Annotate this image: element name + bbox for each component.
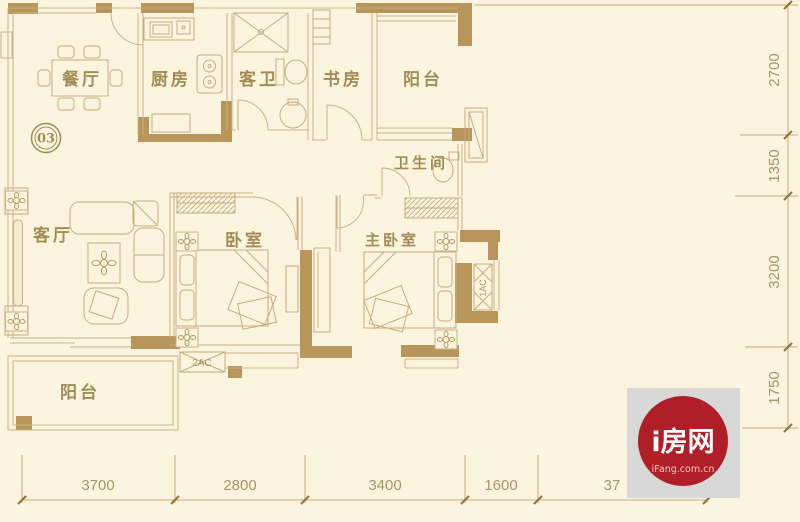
unit-number: 03 bbox=[37, 132, 55, 147]
ifang-logo[interactable]: i房网 iFang.com.cn bbox=[627, 388, 740, 498]
dim-right-1750: 1750 bbox=[766, 371, 783, 404]
furniture bbox=[5, 10, 487, 335]
ac-unit-1-label: 1AC bbox=[478, 279, 488, 297]
dim-right-2700: 2700 bbox=[766, 53, 783, 86]
floor-plan-page: 2AC 1AC 餐厅 厨房 客卫 书房 阳台 卫生间 客厅 卧室 主卧室 阳台 … bbox=[0, 0, 800, 522]
floor-plan-canvas: 2AC 1AC 餐厅 厨房 客卫 书房 阳台 卫生间 客厅 卧室 主卧室 阳台 … bbox=[0, 0, 800, 522]
dim-bottom-37: 37 bbox=[604, 477, 621, 494]
dim-right-3200: 3200 bbox=[766, 255, 783, 288]
room-label-kitchen: 厨房 bbox=[151, 69, 191, 90]
bedroom-wardrobe bbox=[177, 193, 235, 213]
washbasin bbox=[280, 99, 306, 128]
master-wardrobe bbox=[405, 198, 458, 218]
ac-unit-2-label: 2AC bbox=[192, 358, 211, 369]
room-label-study: 书房 bbox=[323, 69, 363, 90]
bookshelf bbox=[313, 10, 330, 44]
dim-bottom-2800: 2800 bbox=[223, 477, 256, 494]
sofa-set bbox=[70, 201, 164, 324]
room-label-master: 主卧室 bbox=[365, 231, 419, 249]
lamp-symbols bbox=[6, 191, 458, 349]
room-label-balcony-bottom: 阳台 bbox=[60, 382, 100, 403]
room-label-guest-bath: 客卫 bbox=[238, 69, 279, 90]
dim-bottom-3700: 3700 bbox=[81, 477, 114, 494]
dimension-labels-bottom: 3700 2800 3400 1600 37 bbox=[81, 477, 620, 494]
toilet bbox=[276, 59, 307, 85]
dim-bottom-3400: 3400 bbox=[368, 477, 401, 494]
unit-number-badge: 03 bbox=[32, 124, 61, 153]
shower bbox=[234, 13, 288, 52]
dim-right-1350: 1350 bbox=[766, 149, 783, 182]
room-label-dining: 餐厅 bbox=[62, 69, 102, 90]
dimension-labels-right: 2700 1350 3200 1750 bbox=[766, 53, 783, 404]
bedroom-bed bbox=[176, 250, 276, 329]
room-label-balcony-top: 阳台 bbox=[403, 69, 443, 90]
room-label-bedroom: 卧室 bbox=[225, 230, 265, 251]
room-label-bathroom: 卫生间 bbox=[394, 154, 448, 172]
dim-bottom-1600: 1600 bbox=[484, 477, 517, 494]
logo-title: i房网 bbox=[651, 427, 714, 458]
master-bed bbox=[364, 252, 456, 332]
room-label-living: 客厅 bbox=[32, 225, 73, 246]
logo-subtitle: iFang.com.cn bbox=[652, 464, 715, 475]
coffee-table bbox=[88, 243, 120, 283]
